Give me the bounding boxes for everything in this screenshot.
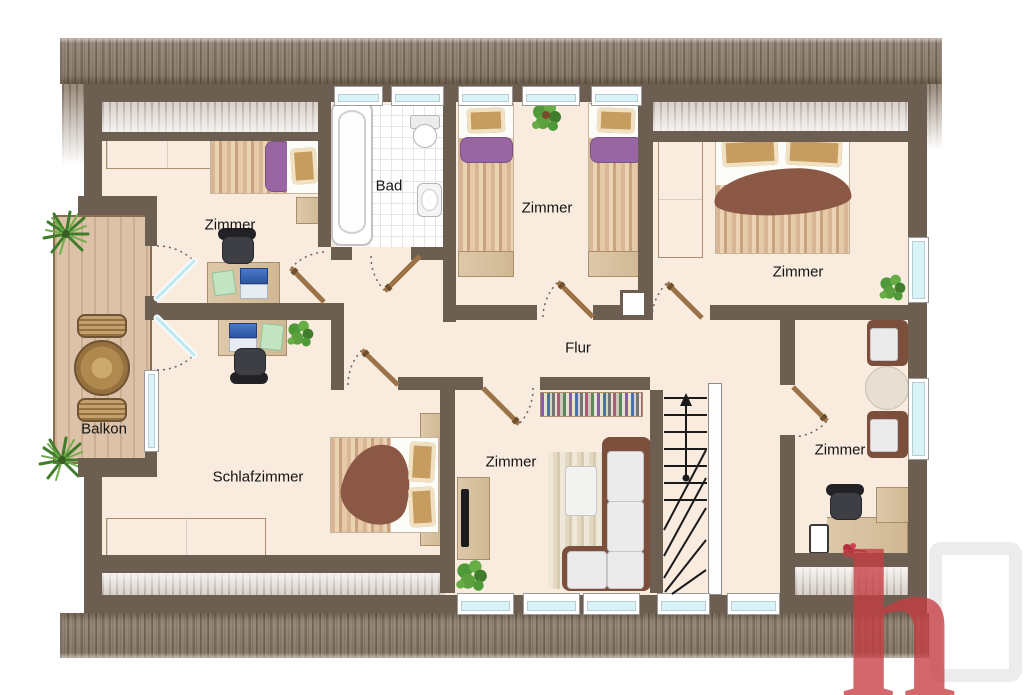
room-label-balkon: Balkon	[81, 421, 127, 438]
logo-letter: h	[838, 518, 958, 695]
door-leaves	[291, 256, 827, 424]
stair-arrow-origin	[683, 475, 690, 482]
room-label-bad: Bad	[376, 178, 403, 195]
room-label-zimmer-top-left: Zimmer	[205, 217, 256, 234]
door-handles	[293, 270, 825, 422]
door-arcs	[157, 246, 827, 437]
stair-direction-arrow	[680, 393, 692, 406]
room-label-zimmer-top-right: Zimmer	[773, 264, 824, 281]
room-label-zimmer-top-middle: Zimmer	[522, 200, 573, 217]
room-label-zimmer-bottom-right: Zimmer	[815, 442, 866, 459]
balcony-glass-doors	[157, 261, 194, 355]
room-label-flur: Flur	[565, 340, 591, 357]
room-label-zimmer-bottom-middle: Zimmer	[486, 454, 537, 471]
staircase	[664, 398, 707, 594]
floor-plan: Zimmer Bad Zimmer Zimmer Flur Schlafzimm…	[0, 0, 1024, 695]
room-label-schlafzimmer: Schlafzimmer	[213, 469, 304, 486]
